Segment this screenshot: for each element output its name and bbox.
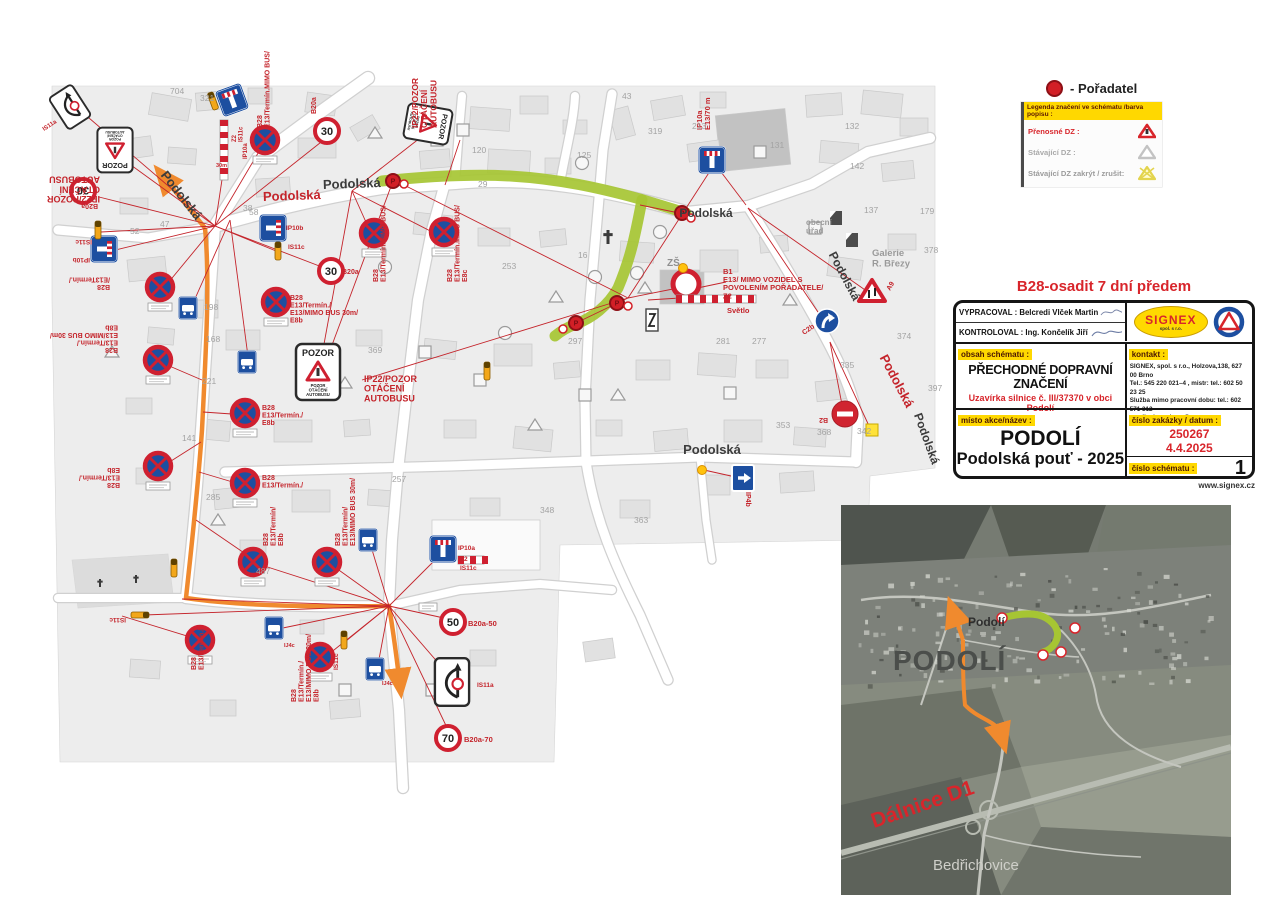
sign-label: B20a xyxy=(342,269,359,276)
b28-sign xyxy=(147,274,173,311)
redp-sign: P xyxy=(610,296,624,310)
svg-text:281: 281 xyxy=(716,336,730,346)
wdot-sign xyxy=(559,325,567,333)
kontakt-line: Tel.: 545 220 021–4 , mistr: tel.: 602 5… xyxy=(1130,380,1249,397)
parcel-number: 348 xyxy=(540,505,554,515)
svg-text:369: 369 xyxy=(368,345,382,355)
speed-sign: 70 xyxy=(436,726,460,750)
svg-text:IJ4c: IJ4c xyxy=(284,643,295,649)
marker-sign xyxy=(171,559,177,577)
ip10b-sign xyxy=(91,236,117,262)
existing-s-sign xyxy=(419,346,431,358)
legend-label: Přenosné DZ : xyxy=(1028,127,1079,136)
inset-route-marker xyxy=(1070,623,1080,633)
cisla-cell: číslo zakázky / datum : 250267 4.4.2025 … xyxy=(1125,408,1252,476)
busstop-sign xyxy=(265,617,283,639)
sign-label: IS11c xyxy=(460,565,477,572)
svg-text:277: 277 xyxy=(752,336,766,346)
existing-s-sign xyxy=(724,387,736,399)
svg-text:253: 253 xyxy=(502,261,516,271)
sign-label: B2 xyxy=(819,416,828,423)
parcel-number: 369 xyxy=(368,345,382,355)
parcel-number: 213 xyxy=(692,121,706,131)
plate-sign xyxy=(419,603,437,611)
ydot-sign xyxy=(698,466,707,475)
parcel-number: 285 xyxy=(206,492,220,502)
street-name: Podolská xyxy=(323,175,382,192)
svg-text:285: 285 xyxy=(206,492,220,502)
b1-sign xyxy=(673,271,699,297)
sign-label: Světlo xyxy=(727,306,750,315)
obsah-label: obsah schématu : xyxy=(958,349,1032,360)
svg-text:221: 221 xyxy=(202,376,216,386)
signex-emblem-icon xyxy=(1213,306,1245,338)
place-label: ZŠ xyxy=(667,256,680,269)
existing-sh-sign xyxy=(846,233,858,247)
existing-s-sign xyxy=(457,124,469,136)
existing-s-sign xyxy=(339,684,351,696)
legend-header: Legenda značení ve schématu /barva popis… xyxy=(1024,102,1162,120)
traffic-scheme-page: 3030305070POZORPOZOROTÁČENÍAUTOBUSUPOZOR… xyxy=(0,0,1280,904)
svg-text:Podolská: Podolská xyxy=(323,175,382,192)
b28-sign xyxy=(145,347,171,384)
parcel-number: 198 xyxy=(204,302,218,312)
svg-text:IS11c: IS11c xyxy=(333,653,340,670)
c2b-sign xyxy=(815,309,839,333)
aerial-photo xyxy=(841,505,1231,895)
parcel-number: 131 xyxy=(770,140,784,150)
b28-sign xyxy=(145,453,171,490)
parcel-number: 142 xyxy=(850,161,864,171)
svg-text:Světlo: Světlo xyxy=(727,306,750,315)
parcel-number: 221 xyxy=(202,376,216,386)
svg-text:131: 131 xyxy=(770,140,784,150)
parcel-number: 43 xyxy=(622,91,632,101)
svg-text:374: 374 xyxy=(897,331,911,341)
zakazka-date: 4.4.2025 xyxy=(1127,442,1252,456)
svg-text:Podolská: Podolská xyxy=(263,187,322,204)
svg-text:132: 132 xyxy=(845,121,859,131)
parcel-number: 704 xyxy=(170,86,184,96)
inset-route-marker xyxy=(1038,650,1048,660)
sign-label: 30m xyxy=(216,163,227,169)
svg-text:POZOR: POZOR xyxy=(302,348,335,358)
speed-sign: 30 xyxy=(319,259,343,283)
obsah-cell: obsah schématu : PŘECHODNÉ DOPRAVNÍ ZNAČ… xyxy=(956,342,1125,408)
parcel-number: 125 xyxy=(577,150,591,160)
ip10a-sign xyxy=(699,147,725,173)
b28-sign xyxy=(263,289,289,326)
covered-sign-icon xyxy=(1138,165,1156,181)
svg-text:30: 30 xyxy=(325,266,337,278)
svg-text:P: P xyxy=(391,179,396,186)
legend-label: Stávající DZ : xyxy=(1028,148,1076,157)
signatures-cell: VYPRACOVAL : Belcredi Vlček Martin KONTR… xyxy=(956,303,1125,342)
svg-text:168: 168 xyxy=(206,334,220,344)
existing-s-sign xyxy=(754,146,766,158)
pozor-sign: POZORPOZOROTÁČENÍAUTOBUSU xyxy=(296,344,340,400)
svg-text:353: 353 xyxy=(776,420,790,430)
parcel-number: 47 xyxy=(160,219,170,229)
svg-text:397: 397 xyxy=(928,383,942,393)
poradatel-dot-icon xyxy=(1046,80,1063,97)
inset-town-name: PODOLÍ xyxy=(893,645,1006,677)
parcel-number: 321 xyxy=(200,93,214,103)
parcel-number: 487 xyxy=(256,566,270,576)
sign-label: IP10b xyxy=(73,256,90,263)
svg-text:120: 120 xyxy=(472,145,486,155)
ip4b-sign xyxy=(732,465,754,491)
sign-label: IJ4c xyxy=(382,681,393,687)
parcel-number: 38 xyxy=(243,203,253,213)
obsah-title: PŘECHODNÉ DOPRAVNÍ ZNAČENÍ xyxy=(956,363,1125,391)
misto-name: PODOLÍ xyxy=(956,428,1125,450)
title-block: B28-osadit 7 dní předem VYPRACOVAL : Bel… xyxy=(953,278,1255,490)
svg-text:IS11c: IS11c xyxy=(460,565,477,572)
svg-text:321: 321 xyxy=(200,93,214,103)
b28-sign xyxy=(232,400,258,437)
parcel-number: 29 xyxy=(478,179,488,189)
b28-sign xyxy=(232,470,258,507)
sign-label: IP4b xyxy=(744,492,751,507)
website-url: www.signex.cz xyxy=(953,481,1255,490)
sign-label: IJ4c xyxy=(284,643,295,649)
svg-text:487: 487 xyxy=(256,566,270,576)
ip10a-sign xyxy=(430,536,456,562)
busstop-sign xyxy=(179,297,197,319)
vypracoval-label: VYPRACOVAL xyxy=(959,308,1013,317)
wdot-sign xyxy=(624,302,632,310)
redp-sign: P xyxy=(569,316,583,330)
parcel-number: 132 xyxy=(845,121,859,131)
title-block-table: VYPRACOVAL : Belcredi Vlček Martin KONTR… xyxy=(953,300,1255,479)
svg-text:IS11a: IS11a xyxy=(477,682,494,689)
svg-text:319: 319 xyxy=(648,126,662,136)
misto-cell: místo akce/název : PODOLÍ Podolská pouť … xyxy=(956,408,1125,476)
parcel-number: 179 xyxy=(920,206,934,216)
speed-sign: 30 xyxy=(315,119,339,143)
ydot-sign xyxy=(679,264,688,273)
parcel-number: 335 xyxy=(840,360,854,370)
svg-text:B20a: B20a xyxy=(311,97,318,114)
poradatel-label: - Pořadatel xyxy=(1070,81,1137,96)
schema-row: číslo schématu : 1 xyxy=(1127,456,1252,479)
inset-route-marker xyxy=(1056,647,1066,657)
parcel-number: 168 xyxy=(206,334,220,344)
inset-town-marker-label: Podolí xyxy=(968,615,1005,629)
parcel-number: 363 xyxy=(634,515,648,525)
street-name: Podolská xyxy=(263,187,322,204)
legend-box: Legenda značení ve schématu /barva popis… xyxy=(1021,102,1162,187)
wdot-sign xyxy=(400,180,408,188)
kontakt-cell: kontakt : SIGNEX, spol. s r.o., Holzova,… xyxy=(1125,342,1252,408)
existing-sh-sign xyxy=(830,211,842,225)
ip10b-sign xyxy=(260,215,286,241)
parcel-number: 342 xyxy=(857,426,871,436)
svg-text:POZOR: POZOR xyxy=(101,161,127,170)
svg-text:257: 257 xyxy=(392,474,406,484)
signex-logo-text: SIGNEX xyxy=(1145,314,1196,326)
sign-label: IS11c xyxy=(333,653,340,670)
parcel-number: 397 xyxy=(928,383,942,393)
svg-text:IS11c: IS11c xyxy=(288,244,305,251)
misto-event: Podolská pouť - 2025 xyxy=(956,450,1125,469)
sign-label: IP10b xyxy=(286,225,303,232)
is11abox-sign xyxy=(435,658,469,706)
svg-text:29: 29 xyxy=(478,179,488,189)
sign-label: IS11a xyxy=(477,682,494,689)
b28-sign xyxy=(431,219,457,256)
svg-text:Z2: Z2 xyxy=(460,556,468,563)
busstop-sign xyxy=(359,529,377,551)
svg-text:142: 142 xyxy=(850,161,864,171)
svg-text:43: 43 xyxy=(622,91,632,101)
zakazka-label: číslo zakázky / datum : xyxy=(1129,415,1221,426)
b28-sign xyxy=(252,127,278,164)
portable-sign-icon xyxy=(1138,123,1156,139)
svg-text:IP10b: IP10b xyxy=(286,225,303,232)
svg-text:Podolská: Podolská xyxy=(683,442,742,457)
vypracoval-signature xyxy=(1098,305,1122,320)
marker-sign xyxy=(275,242,281,260)
signex-logo-sub: spol. s r.o. xyxy=(1160,326,1182,331)
sign-label: B20a xyxy=(311,97,318,114)
existing-c-sign xyxy=(654,226,667,239)
parcel-number: 374 xyxy=(897,331,911,341)
svg-text:50: 50 xyxy=(447,617,459,629)
svg-text:52: 52 xyxy=(130,226,140,236)
pozor-sign: POZORPOZOROTÁČENÍAUTOBUSU xyxy=(97,128,132,173)
parcel-number: 137 xyxy=(864,205,878,215)
existing-s-sign xyxy=(579,389,591,401)
kontakt-label: kontakt : xyxy=(1129,349,1168,360)
sign-label: B20a xyxy=(81,202,98,209)
existing-z-sign xyxy=(646,309,658,331)
legend-row-covered: Stávající DZ zakrýt / zrušit: xyxy=(1024,162,1162,183)
svg-text:P: P xyxy=(574,321,579,328)
svg-text:Podolská: Podolská xyxy=(679,206,733,220)
svg-text:B20a-70: B20a-70 xyxy=(464,735,493,744)
svg-text:297: 297 xyxy=(568,336,582,346)
svg-text:IJ4c: IJ4c xyxy=(382,681,393,687)
svg-text:213: 213 xyxy=(692,121,706,131)
b28-sign xyxy=(314,549,340,586)
speed-sign: 50 xyxy=(441,610,465,634)
busstop-sign xyxy=(238,351,256,373)
sign-label: Z2 xyxy=(460,556,468,563)
vypracoval-row: VYPRACOVAL : Belcredi Vlček Martin xyxy=(956,303,1125,323)
svg-text:348: 348 xyxy=(540,505,554,515)
sign-label: IP10a xyxy=(243,143,249,159)
svg-text:335: 335 xyxy=(840,360,854,370)
svg-text:IS11c: IS11c xyxy=(75,238,92,245)
legend-label: Stávající DZ zakrýt / zrušit: xyxy=(1028,169,1124,178)
kontakt-line: SIGNEX, spol. s r.o., Holzova,138, 627 0… xyxy=(1130,363,1249,380)
svg-text:137: 137 xyxy=(864,205,878,215)
svg-text:38: 38 xyxy=(243,203,253,213)
svg-text:IP22/POZOROTÁČENÍAUTOBUSU: IP22/POZOROTÁČENÍAUTOBUSU xyxy=(410,78,438,128)
marker-sign xyxy=(484,362,490,380)
redp-sign: P xyxy=(386,174,400,188)
parcel-number: 257 xyxy=(392,474,406,484)
svg-text:B20a: B20a xyxy=(342,269,359,276)
legend-row-existing: Stávající DZ : xyxy=(1024,141,1162,162)
svg-text:16: 16 xyxy=(578,250,588,260)
zakazka-number: 250267 xyxy=(1127,428,1252,442)
svg-text:363: 363 xyxy=(634,515,648,525)
parcel-number: 297 xyxy=(568,336,582,346)
sign-label: IS11c xyxy=(75,238,92,245)
inset-village-label: Bedřichovice xyxy=(933,857,1019,874)
traffic-plan-map: 3030305070POZORPOZOROTÁČENÍAUTOBUSUPOZOR… xyxy=(0,0,960,904)
svg-text:198: 198 xyxy=(204,302,218,312)
kontroloval-label: KONTROLOVAL xyxy=(959,328,1019,337)
svg-text:IP10a: IP10a xyxy=(243,143,249,159)
svg-text:70: 70 xyxy=(442,733,454,745)
sign-label: IS11c xyxy=(288,244,305,251)
sign-label: B20a-50 xyxy=(468,619,497,628)
parcel-number: 277 xyxy=(752,336,766,346)
street-name: Podolská xyxy=(679,206,733,220)
svg-text:B20a-50: B20a-50 xyxy=(468,619,497,628)
signex-logo: SIGNEX spol. s r.o. xyxy=(1134,306,1208,338)
svg-text:141: 141 xyxy=(182,433,196,443)
legend-row-portable: Přenosné DZ : xyxy=(1024,120,1162,141)
svg-text:125: 125 xyxy=(577,150,591,160)
parcel-number: 52 xyxy=(130,226,140,236)
kontroloval-value: : Ing. Končelík Jiří xyxy=(1021,328,1088,337)
svg-text:B20a: B20a xyxy=(81,202,98,209)
marker-sign xyxy=(95,221,101,239)
misto-label: místo akce/název : xyxy=(958,415,1035,426)
svg-text:342: 342 xyxy=(857,426,871,436)
parcel-number: 281 xyxy=(716,336,730,346)
svg-text:IP10a: IP10a xyxy=(458,545,475,552)
b2-sign xyxy=(832,401,858,427)
poradatel-legend: - Pořadatel xyxy=(1046,80,1137,97)
street-name: Podolská xyxy=(683,442,742,457)
parcel-number: 141 xyxy=(182,433,196,443)
svg-text:179: 179 xyxy=(920,206,934,216)
parcel-number: 16 xyxy=(578,250,588,260)
title-block-heading: B28-osadit 7 dní předem xyxy=(953,278,1255,295)
z2v-sign xyxy=(220,120,228,180)
svg-text:ZŠ: ZŠ xyxy=(667,256,680,269)
parcel-number: 253 xyxy=(502,261,516,271)
svg-text:378: 378 xyxy=(924,245,938,255)
sign-label: B20a-70 xyxy=(464,735,493,744)
svg-text:47: 47 xyxy=(160,219,170,229)
sign-label: IP10a xyxy=(458,545,475,552)
parcel-number: 353 xyxy=(776,420,790,430)
svg-text:IP10b: IP10b xyxy=(73,256,90,263)
z2h-sign xyxy=(676,295,756,303)
marker-sign xyxy=(131,612,149,618)
marker-sign xyxy=(341,631,347,649)
svg-text:30m: 30m xyxy=(216,163,227,169)
aerial-inset: Podolí PODOLÍ Dálnice D1 Bedřichovice xyxy=(841,505,1231,895)
sign-label: IS11c xyxy=(109,616,126,623)
svg-text:704: 704 xyxy=(170,86,184,96)
schema-label: číslo schématu : xyxy=(1129,463,1198,474)
parcel-number: 120 xyxy=(472,145,486,155)
vypracoval-value: : Belcredi Vlček Martin xyxy=(1015,308,1099,317)
kontroloval-row: KONTROLOVAL : Ing. Končelík Jiří xyxy=(956,323,1125,342)
svg-text:IP4b: IP4b xyxy=(744,492,751,507)
svg-text:P: P xyxy=(615,301,620,308)
svg-text:30: 30 xyxy=(321,126,333,138)
existing-sign-icon xyxy=(1138,144,1156,160)
busstop-sign xyxy=(366,658,384,680)
svg-text:368: 368 xyxy=(817,427,831,437)
svg-text:IS11c: IS11c xyxy=(109,616,126,623)
parcel-number: 368 xyxy=(817,427,831,437)
parcel-number: 378 xyxy=(924,245,938,255)
schema-number: 1 xyxy=(1235,457,1246,479)
kontroloval-signature xyxy=(1088,325,1122,340)
parcel-number: 319 xyxy=(648,126,662,136)
svg-text:B2: B2 xyxy=(819,416,828,423)
logos-cell: SIGNEX spol. s r.o. xyxy=(1125,303,1252,341)
sign-label: IP22/POZOROTÁČENÍAUTOBUSU xyxy=(410,78,438,128)
